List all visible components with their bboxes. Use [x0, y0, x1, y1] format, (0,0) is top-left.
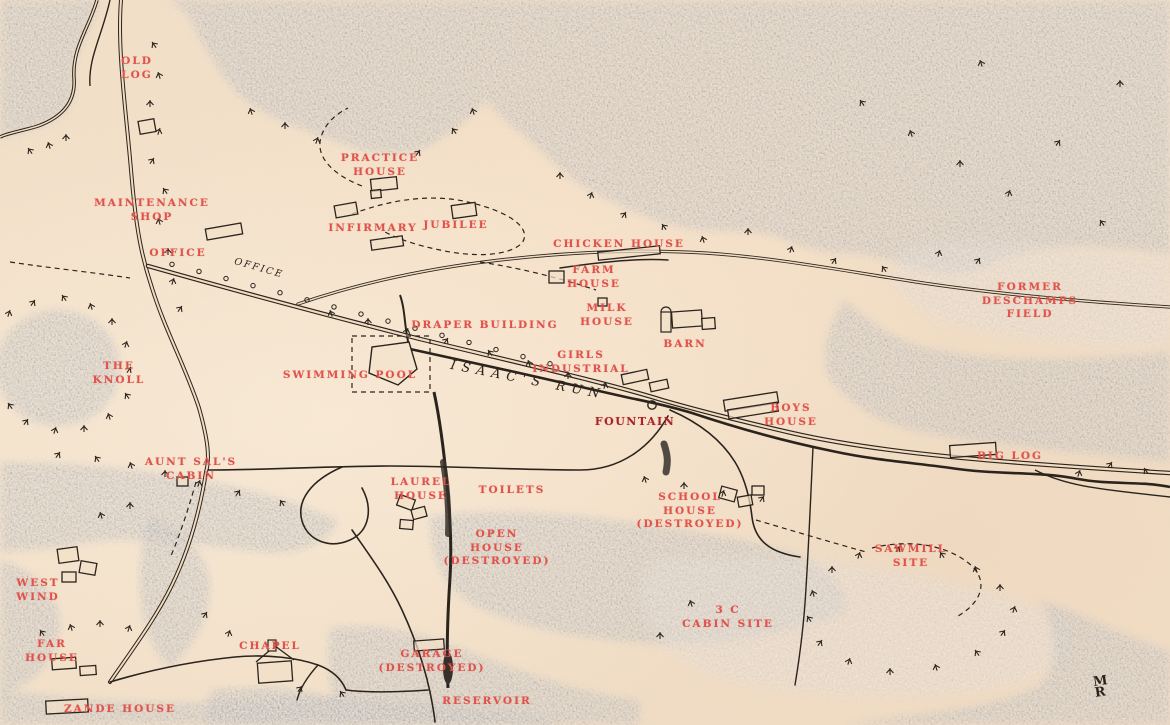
cartographer-monogram: M R	[1093, 675, 1110, 699]
reservoir-shape	[443, 652, 453, 684]
hand-drawn-map: OLD LOGMAINTENANCE SHOPOFFICEPRACTICE HO…	[0, 0, 1170, 725]
map-drawing	[0, 0, 1170, 725]
